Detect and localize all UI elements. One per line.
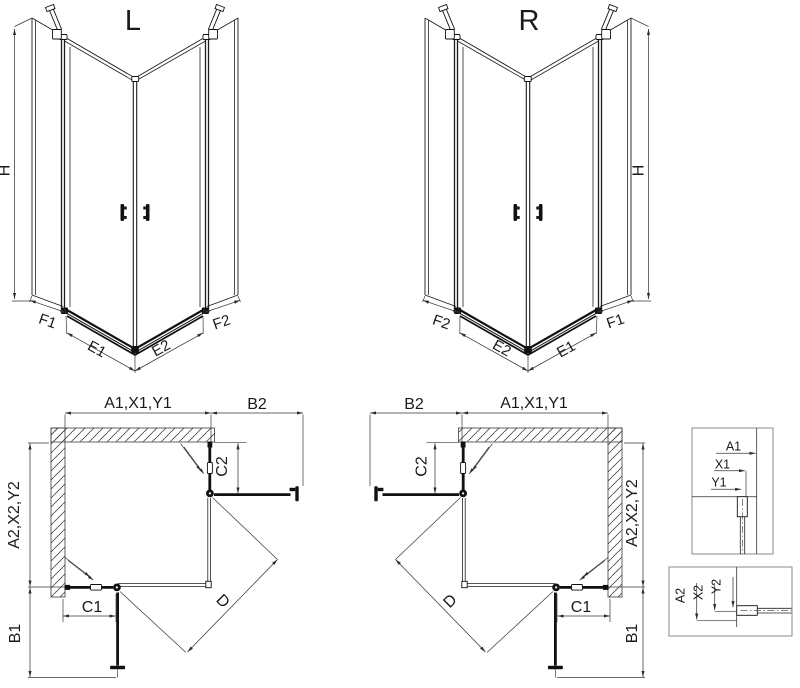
dim-h-left: H [0,165,14,177]
plan-right-c1: C1 [571,599,592,616]
dim-f2-left: F2 [211,312,233,334]
plan-left-depth: A2,X2,Y2 [6,481,23,549]
dim-f1-left: F1 [36,311,58,333]
plan-left-walls [51,428,215,597]
plan-right [370,413,645,678]
plan-right-width: A1,X1,Y1 [500,395,568,412]
detail-y1: Y1 [711,476,726,490]
plan-left-width: A1,X1,Y1 [104,395,172,412]
title-right: R [519,5,540,37]
dim-e2-right: E2 [490,337,514,361]
plan-left-c2: C2 [214,456,231,477]
detail-a2: A2 [674,588,688,603]
plan-left [28,413,303,678]
drawing-canvas: L H F1 E1 E2 F2 R H F2 E2 E1 F1 A1,X1,Y1… [0,0,800,688]
title-left: L [125,5,141,37]
detail-y2: Y2 [710,579,724,594]
dim-e2-left: E2 [149,337,173,361]
dim-e1-left: E1 [85,338,109,362]
plan-right-b1: B1 [624,624,641,644]
plan-right-b2: B2 [404,396,424,413]
dim-e1-right: E1 [554,338,578,362]
plan-right-depth: A2,X2,Y2 [624,479,641,547]
detail-x2: X2 [692,585,706,600]
plan-right-c2: C2 [414,456,431,477]
detail-a1: A1 [726,440,741,454]
labels: L H F1 E1 E2 F2 R H F2 E2 E1 F1 A1,X1,Y1… [0,5,741,643]
detail-x1: X1 [715,458,730,472]
shower-enclosure-technical-drawing: L H F1 E1 E2 F2 R H F2 E2 E1 F1 A1,X1,Y1… [0,0,800,688]
plan-left-b1: B1 [7,624,24,644]
plan-right-walls [459,428,623,597]
plan-left-c1: C1 [82,599,103,616]
dim-f1-right: F1 [604,311,626,333]
plan-left-b2: B2 [247,396,267,413]
dim-f2-right: F2 [430,312,452,334]
dim-h-right: H [631,165,648,177]
